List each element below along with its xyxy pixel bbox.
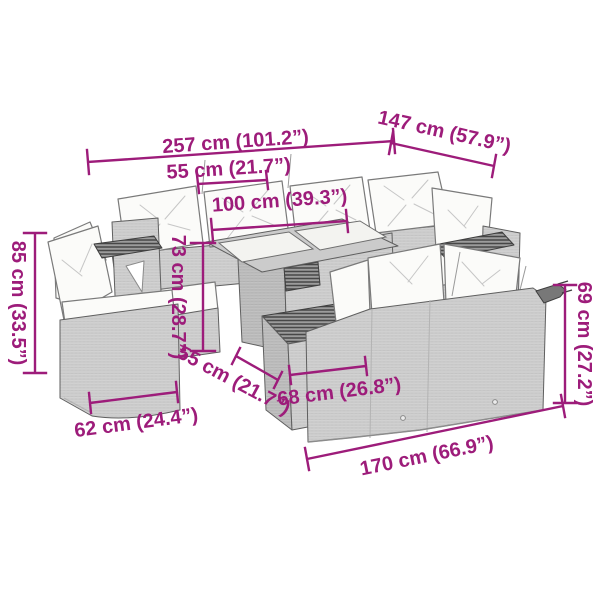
diagram-canvas: 257 cm (101.2”) 147 cm (57.9”) 55 cm (21…: [0, 0, 600, 600]
left-chair: [48, 218, 180, 418]
dimension-label: 73 cm (28.7”): [167, 235, 189, 360]
dimension-label: 85 cm (33.5”): [7, 241, 29, 366]
dimension-label: 69 cm (27.2”): [573, 282, 595, 407]
product-diagram: 257 cm (101.2”) 147 cm (57.9”) 55 cm (21…: [0, 0, 600, 600]
dimension-backrest-height-left: 85 cm (33.5”): [7, 233, 46, 373]
dimension-label: 147 cm (57.9”): [376, 107, 513, 158]
dimension-overall-depth: 147 cm (57.9”): [376, 107, 513, 177]
dimension-label: 55 cm (21.7”): [166, 154, 292, 184]
dimension-label: 257 cm (101.2”): [162, 126, 310, 158]
dimension-sofa-height-right: 69 cm (27.2”): [554, 282, 595, 407]
dimension-label: 170 cm (66.9”): [358, 432, 495, 481]
